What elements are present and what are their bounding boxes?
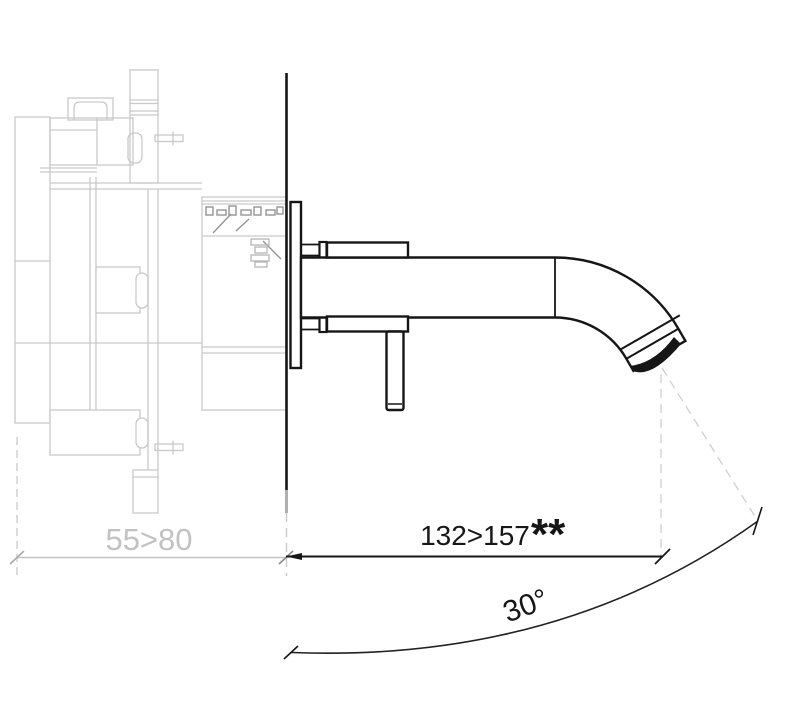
mounting-bracket [68, 98, 113, 120]
upper-nut [320, 242, 327, 258]
upper-valve-block [50, 118, 133, 165]
technical-drawing-canvas: 55>80 132>157 ** 30° [0, 0, 800, 708]
upper-collar [327, 243, 408, 258]
upper-stub-pipe [155, 135, 183, 142]
projection-note: ** [531, 510, 566, 559]
cover-plate [291, 202, 302, 368]
projection-label: 132>157 [420, 520, 530, 551]
faucet-visible [291, 202, 686, 410]
faucet-section-diagram: 55>80 132>157 ** 30° [0, 0, 800, 708]
cartridge-housing [202, 197, 286, 410]
swivel-cone-edge [662, 368, 756, 518]
lower-collar [327, 317, 408, 332]
dimension-depth: 55>80 [10, 437, 293, 576]
projection-arrow [286, 553, 302, 560]
handle-lever [387, 332, 404, 411]
cartridge-step-details [251, 239, 269, 267]
depth-label: 55>80 [105, 522, 192, 557]
supply-pipe [130, 70, 158, 183]
swivel-angle: 30° [284, 368, 762, 659]
lower-piston [50, 410, 140, 455]
cartridge-hatch-details [206, 206, 283, 259]
middle-piston [96, 267, 140, 313]
lower-stub-pipe [155, 444, 183, 451]
angle-label: 30° [499, 583, 553, 630]
left-housing [15, 117, 50, 423]
spout [301, 258, 685, 371]
concealed-valve-body [15, 70, 286, 513]
dimension-projection: 132>157 ** [286, 374, 670, 564]
